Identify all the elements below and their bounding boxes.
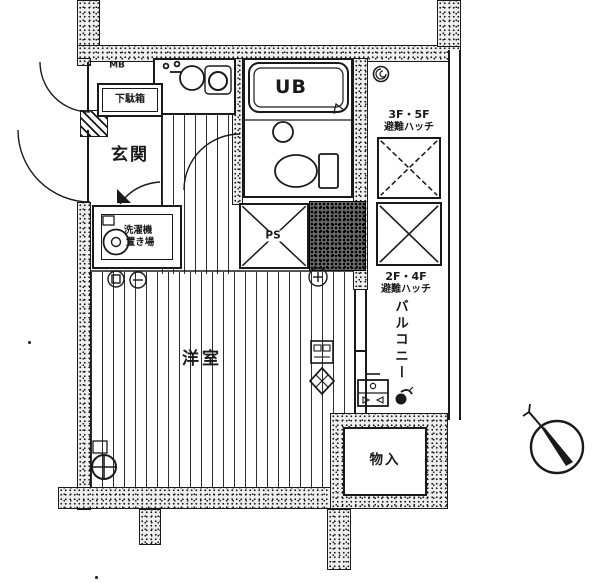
unit-bath-label: UB	[275, 78, 307, 98]
storage-label: 物入	[370, 453, 401, 467]
meter-box-door-arc	[40, 62, 90, 112]
compass-north-icon	[523, 404, 583, 473]
water-heater-icon	[358, 374, 388, 406]
unit-bath-door-arc	[184, 134, 240, 190]
hatch-upper-name-label: 避難ハッチ	[384, 123, 434, 134]
pipe-space-label: PS	[263, 230, 282, 241]
vent-symbol-icon	[310, 368, 334, 394]
faucet-icon	[396, 387, 414, 405]
entrance-step-arc	[117, 182, 160, 204]
scan-artifact-dot	[28, 341, 31, 344]
drain-icon	[374, 67, 389, 82]
shoe-cabinet-label: 下駄箱	[115, 95, 145, 106]
western-room-label: 洋室	[182, 351, 222, 369]
tv-outlet-icon	[311, 341, 333, 363]
toilet-icon	[275, 154, 338, 188]
meter-box-label: MB	[109, 61, 125, 70]
hatch-lower-name-label: 避難ハッチ	[381, 285, 431, 296]
wall-outlet-icon	[91, 441, 116, 479]
entrance-door-arc	[18, 130, 90, 202]
washbasin-icon	[273, 122, 293, 142]
balcony-label: バルコニー	[390, 299, 410, 382]
hatch-lower-floors-label: 2F・4F	[385, 271, 426, 283]
kitchen-sink-icon	[164, 62, 231, 94]
scan-artifact-dot	[95, 576, 98, 579]
entrance-label: 玄関	[111, 147, 149, 165]
floor-plan: MB 下駄箱 玄関 洗濯機 置き場 UB PS 洋室 物入 3F・5F 避難ハッ…	[0, 0, 611, 583]
washer-space-label-2: 置き場	[126, 238, 155, 248]
hatch-upper-floors-label: 3F・5F	[388, 109, 429, 121]
washer-space-label-1: 洗濯機	[124, 226, 153, 236]
